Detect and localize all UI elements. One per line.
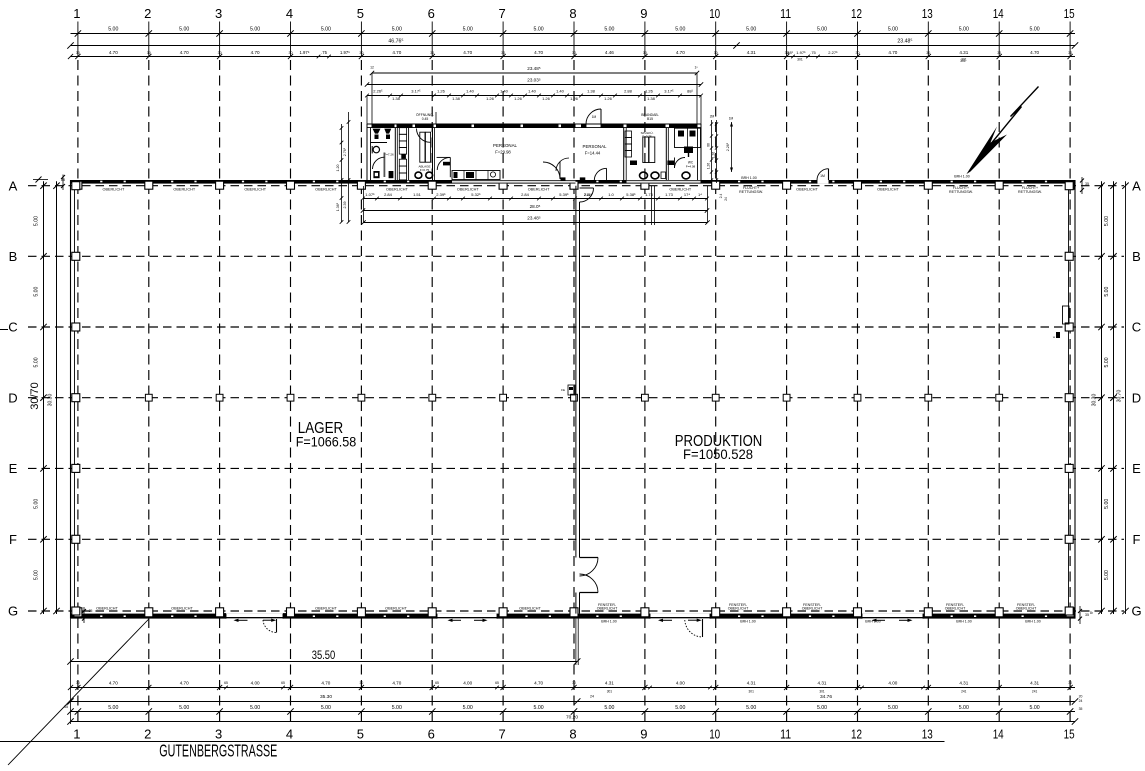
svg-text:OBERLICHT: OBERLICHT xyxy=(877,187,899,191)
svg-text:5.00: 5.00 xyxy=(179,27,189,33)
svg-text:4.31: 4.31 xyxy=(605,681,614,686)
svg-text:24: 24 xyxy=(590,695,594,699)
svg-text:1.38: 1.38 xyxy=(587,89,596,94)
svg-text:OBERLICHT: OBERLICHT xyxy=(244,187,266,191)
svg-text:1.26: 1.26 xyxy=(645,89,654,94)
svg-text:23.03⁵: 23.03⁵ xyxy=(527,78,540,83)
svg-text:3: 3 xyxy=(215,6,222,21)
svg-text:30: 30 xyxy=(430,51,434,55)
svg-text:5.00: 5.00 xyxy=(34,216,40,226)
svg-text:35: 35 xyxy=(1079,707,1083,711)
svg-text:5.00: 5.00 xyxy=(392,705,402,711)
svg-text:70.20: 70.20 xyxy=(566,715,578,721)
svg-text:3: 3 xyxy=(215,726,222,741)
svg-text:1⁴: 1⁴ xyxy=(698,192,702,197)
svg-text:4.70: 4.70 xyxy=(321,681,330,686)
svg-text:FE: FE xyxy=(561,388,565,392)
svg-text:5.00: 5.00 xyxy=(34,286,40,296)
svg-text:4.00: 4.00 xyxy=(463,681,472,686)
svg-text:4.70: 4.70 xyxy=(534,50,543,55)
svg-text:30: 30 xyxy=(643,51,647,55)
svg-text:30: 30 xyxy=(76,681,80,685)
svg-text:4: 4 xyxy=(286,726,293,741)
svg-text:5.00: 5.00 xyxy=(108,705,118,711)
svg-text:30: 30 xyxy=(997,51,1001,55)
svg-text:E: E xyxy=(1132,461,1141,476)
svg-text:1.26: 1.26 xyxy=(437,89,446,94)
svg-text:23.48⁵: 23.48⁵ xyxy=(527,216,540,221)
svg-text:F: F xyxy=(9,532,17,547)
svg-text:1M: 1M xyxy=(729,117,734,121)
svg-text:30: 30 xyxy=(359,51,363,55)
svg-text:1.40: 1.40 xyxy=(528,89,537,94)
svg-text:OBERLICHT: OBERLICHT xyxy=(96,606,118,610)
svg-text:4.70: 4.70 xyxy=(180,681,189,686)
svg-text:2.84: 2.84 xyxy=(584,192,593,197)
svg-text:301: 301 xyxy=(797,58,803,62)
svg-text:1.26: 1.26 xyxy=(707,163,711,169)
svg-text:28.0⁵: 28.0⁵ xyxy=(530,204,541,209)
svg-text:D: D xyxy=(8,390,17,405)
svg-text:2M: 2M xyxy=(710,115,715,119)
svg-text:30: 30 xyxy=(1068,51,1072,55)
svg-text:4.31: 4.31 xyxy=(959,50,968,55)
svg-text:8: 8 xyxy=(569,6,576,21)
svg-text:OBERLICHT: OBERLICHT xyxy=(103,187,125,191)
svg-text:OBERLICHT: OBERLICHT xyxy=(1016,606,1037,610)
svg-text:1.38: 1.38 xyxy=(452,96,461,101)
svg-text:1.51: 1.51 xyxy=(413,192,422,197)
svg-text:F=29.98: F=29.98 xyxy=(495,150,511,155)
svg-text:30: 30 xyxy=(76,51,80,55)
svg-text:OBERLICHT: OBERLICHT xyxy=(796,187,818,191)
svg-text:23.48⁵: 23.48⁵ xyxy=(527,66,540,71)
svg-text:OBERLICHT: OBERLICHT xyxy=(171,606,193,610)
svg-text:24: 24 xyxy=(1079,699,1083,703)
svg-text:35.50: 35.50 xyxy=(312,648,336,662)
svg-text:1.40: 1.40 xyxy=(556,89,565,94)
svg-text:88¹: 88¹ xyxy=(687,89,693,94)
svg-text:7: 7 xyxy=(498,726,505,741)
svg-text:15: 15 xyxy=(1064,726,1075,741)
svg-text:2.27⁵: 2.27⁵ xyxy=(828,50,838,55)
svg-text:4.70: 4.70 xyxy=(392,50,401,55)
svg-text:PERSONAL: PERSONAL xyxy=(493,143,517,148)
svg-text:5.00: 5.00 xyxy=(1104,357,1110,367)
svg-text:.75: .75 xyxy=(321,50,327,55)
svg-text:30: 30 xyxy=(714,51,718,55)
svg-text:D: D xyxy=(1132,390,1141,405)
svg-text:0.45: 0.45 xyxy=(422,117,429,121)
svg-text:5.00: 5.00 xyxy=(250,705,260,711)
svg-text:3.17⁵: 3.17⁵ xyxy=(664,89,674,94)
svg-text:4.00: 4.00 xyxy=(676,681,685,686)
svg-text:RETTUNGSW.: RETTUNGSW. xyxy=(949,190,973,194)
svg-text:1.97⁵: 1.97⁵ xyxy=(340,50,350,55)
svg-text:1.07⁵: 1.07⁵ xyxy=(365,192,375,197)
svg-text:OBERLICHT: OBERLICHT xyxy=(315,606,337,610)
svg-text:30: 30 xyxy=(501,51,505,55)
svg-text:88: 88 xyxy=(707,143,711,147)
svg-text:B15: B15 xyxy=(647,117,653,121)
svg-text:65: 65 xyxy=(224,681,228,685)
svg-text:65: 65 xyxy=(435,681,439,685)
svg-text:PERSONAL: PERSONAL xyxy=(583,144,607,149)
svg-text:1M: 1M xyxy=(820,174,825,178)
svg-text:301: 301 xyxy=(607,690,613,694)
svg-text:OBERLICHT: OBERLICHT xyxy=(457,187,479,191)
svg-text:1.73: 1.73 xyxy=(665,192,674,197)
svg-text:BRH 1.00: BRH 1.00 xyxy=(740,620,756,624)
svg-text:5: 5 xyxy=(357,726,364,741)
svg-text:2.84: 2.84 xyxy=(521,192,530,197)
svg-text:10: 10 xyxy=(709,726,720,741)
svg-text:34.76: 34.76 xyxy=(820,694,832,700)
svg-text:1.36⁵: 1.36⁵ xyxy=(336,202,340,211)
svg-text:5.00: 5.00 xyxy=(108,27,118,33)
svg-text:23.48⁵: 23.48⁵ xyxy=(897,39,912,45)
svg-text:301: 301 xyxy=(749,690,755,694)
svg-text:5.00: 5.00 xyxy=(675,27,685,33)
svg-text:35.30: 35.30 xyxy=(320,694,332,700)
svg-text:4.70: 4.70 xyxy=(463,50,472,55)
svg-text:5.00: 5.00 xyxy=(1104,216,1110,226)
svg-text:OBERLICHT: OBERLICHT xyxy=(728,606,749,610)
svg-text:301: 301 xyxy=(819,690,825,694)
svg-text:12: 12 xyxy=(370,66,374,70)
svg-text:5.00: 5.00 xyxy=(817,705,827,711)
svg-text:RETTUNGSW.: RETTUNGSW. xyxy=(1018,190,1042,194)
svg-text:30: 30 xyxy=(1068,681,1072,685)
svg-text:5.32⁵: 5.32⁵ xyxy=(471,192,481,197)
svg-text:OBERLICHT: OBERLICHT xyxy=(669,187,691,191)
svg-text:5.00: 5.00 xyxy=(1030,27,1040,33)
svg-text:OBERLICHT: OBERLICHT xyxy=(173,187,195,191)
svg-text:30: 30 xyxy=(926,51,930,55)
svg-text:7: 7 xyxy=(498,6,505,21)
svg-text:4.31: 4.31 xyxy=(818,681,827,686)
svg-text:F: F xyxy=(1133,532,1141,547)
svg-text:5.00: 5.00 xyxy=(1104,286,1110,296)
svg-text:BRH 1.00: BRH 1.00 xyxy=(954,175,970,179)
svg-text:.75: .75 xyxy=(810,50,816,55)
svg-text:12: 12 xyxy=(851,726,862,741)
svg-text:B: B xyxy=(1132,249,1141,264)
svg-text:C: C xyxy=(1132,320,1141,335)
svg-text:OBERLICHT: OBERLICHT xyxy=(386,187,408,191)
svg-text:OBERLICHT: OBERLICHT xyxy=(385,606,407,610)
svg-text:1.26: 1.26 xyxy=(486,96,495,101)
svg-text:1.0: 1.0 xyxy=(608,192,614,197)
svg-text:5.00: 5.00 xyxy=(179,705,189,711)
svg-text:15: 15 xyxy=(1064,6,1075,21)
svg-text:4.70: 4.70 xyxy=(109,681,118,686)
svg-text:5.00: 5.00 xyxy=(746,27,756,33)
svg-text:5.00: 5.00 xyxy=(463,27,473,33)
svg-text:30: 30 xyxy=(572,681,576,685)
svg-text:5.00: 5.00 xyxy=(1104,499,1110,509)
svg-text:2.26⁵: 2.26⁵ xyxy=(726,142,730,151)
svg-text:BRH 1.00: BRH 1.00 xyxy=(601,620,617,624)
svg-text:4.00: 4.00 xyxy=(888,681,897,686)
svg-text:C: C xyxy=(8,320,17,335)
svg-text:5.00: 5.00 xyxy=(34,499,40,509)
svg-text:4.70: 4.70 xyxy=(534,681,543,686)
svg-text:F=4.08: F=4.08 xyxy=(686,164,696,168)
svg-text:1.20: 1.20 xyxy=(336,165,340,172)
svg-text:1.26: 1.26 xyxy=(514,96,523,101)
svg-text:RETTUNGSW.: RETTUNGSW. xyxy=(739,190,763,194)
svg-text:30.70: 30.70 xyxy=(1117,390,1123,403)
svg-text:1: 1 xyxy=(73,726,80,741)
svg-text:3.17⁵: 3.17⁵ xyxy=(411,89,421,94)
svg-text:OBERLICHT: OBERLICHT xyxy=(945,606,966,610)
svg-text:BRH 1.00: BRH 1.00 xyxy=(956,620,972,624)
svg-text:OBERLICHT: OBERLICHT xyxy=(528,187,550,191)
svg-text:6: 6 xyxy=(428,6,435,21)
svg-text:4.31: 4.31 xyxy=(747,681,756,686)
svg-text:20: 20 xyxy=(1079,695,1083,699)
svg-text:4.70: 4.70 xyxy=(1030,50,1039,55)
svg-text:A: A xyxy=(9,178,18,193)
svg-text:2.26⁵: 2.26⁵ xyxy=(373,89,383,94)
svg-text:9: 9 xyxy=(640,726,647,741)
svg-text:F=1066.58: F=1066.58 xyxy=(296,435,357,450)
svg-text:5.00: 5.00 xyxy=(34,570,40,580)
svg-text:24: 24 xyxy=(724,197,728,201)
svg-text:5: 5 xyxy=(357,6,364,21)
svg-text:BRH 1.00: BRH 1.00 xyxy=(865,620,881,624)
svg-text:5.00: 5.00 xyxy=(1030,705,1040,711)
svg-text:5.39⁵: 5.39⁵ xyxy=(559,192,569,197)
svg-text:35: 35 xyxy=(89,609,93,613)
svg-text:1.97⁵: 1.97⁵ xyxy=(300,50,310,55)
svg-text:E: E xyxy=(9,461,18,476)
svg-text:1.26: 1.26 xyxy=(570,96,579,101)
svg-text:G: G xyxy=(8,604,18,619)
svg-text:14: 14 xyxy=(993,6,1004,21)
svg-text:5.00: 5.00 xyxy=(534,705,544,711)
svg-text:2.39⁵: 2.39⁵ xyxy=(436,192,446,197)
svg-text:1.26: 1.26 xyxy=(712,152,716,158)
svg-text:1.26: 1.26 xyxy=(542,96,551,101)
svg-text:5.38⁵: 5.38⁵ xyxy=(626,192,636,197)
svg-text:F=14.44: F=14.44 xyxy=(585,151,601,156)
svg-text:5.00: 5.00 xyxy=(534,27,544,33)
svg-text:5.00: 5.00 xyxy=(1104,570,1110,580)
svg-text:30: 30 xyxy=(856,51,860,55)
svg-text:F=1050.528: F=1050.528 xyxy=(683,447,753,462)
svg-text:OBERLICHT: OBERLICHT xyxy=(802,606,823,610)
svg-text:1.38: 1.38 xyxy=(392,96,401,101)
svg-text:13: 13 xyxy=(922,726,933,741)
svg-text:30: 30 xyxy=(572,51,576,55)
svg-text:5.00: 5.00 xyxy=(321,705,331,711)
svg-text:65: 65 xyxy=(495,681,499,685)
svg-text:5.00: 5.00 xyxy=(959,705,969,711)
svg-text:1.40: 1.40 xyxy=(466,89,475,94)
svg-text:10: 10 xyxy=(709,6,720,21)
svg-text:48¹: 48¹ xyxy=(787,50,793,55)
svg-text:4.46: 4.46 xyxy=(605,50,614,55)
svg-text:5.00: 5.00 xyxy=(463,705,473,711)
svg-text:46.76⁵: 46.76⁵ xyxy=(388,39,403,45)
svg-text:8: 8 xyxy=(569,726,576,741)
svg-text:G: G xyxy=(1131,604,1141,619)
svg-text:OBERLICHT: OBERLICHT xyxy=(315,187,337,191)
svg-text:2.4: 2.4 xyxy=(719,194,723,199)
svg-text:11: 11 xyxy=(780,6,791,21)
svg-text:30: 30 xyxy=(147,51,151,55)
svg-text:BRH 1.00: BRH 1.00 xyxy=(741,176,757,180)
svg-text:4.70: 4.70 xyxy=(251,50,260,55)
svg-text:4: 4 xyxy=(286,6,293,21)
svg-text:5.00: 5.00 xyxy=(604,27,614,33)
svg-text:30: 30 xyxy=(360,681,364,685)
svg-text:OBERLICHT: OBERLICHT xyxy=(519,606,541,610)
svg-text:B: B xyxy=(9,249,18,264)
svg-text:5.00: 5.00 xyxy=(321,27,331,33)
svg-text:35: 35 xyxy=(1085,182,1089,186)
svg-text:5.00: 5.00 xyxy=(392,27,402,33)
svg-text:4.70: 4.70 xyxy=(676,50,685,55)
svg-text:5.00: 5.00 xyxy=(250,27,260,33)
svg-text:1.73: 1.73 xyxy=(645,192,654,197)
svg-text:5.00: 5.00 xyxy=(675,705,685,711)
svg-text:35: 35 xyxy=(1085,613,1089,617)
svg-text:1.26: 1.26 xyxy=(604,96,613,101)
svg-text:2.84: 2.84 xyxy=(384,192,393,197)
svg-text:4.70: 4.70 xyxy=(392,681,401,686)
svg-text:35: 35 xyxy=(64,705,68,709)
svg-text:2.76⁵: 2.76⁵ xyxy=(343,147,347,156)
svg-text:1.97⁵: 1.97⁵ xyxy=(796,50,806,55)
svg-text:12: 12 xyxy=(851,6,862,21)
svg-text:30.30: 30.30 xyxy=(1092,394,1098,407)
svg-text:2.88: 2.88 xyxy=(624,89,633,94)
svg-text:4.70: 4.70 xyxy=(109,50,118,55)
svg-text:301: 301 xyxy=(960,59,966,63)
svg-text:4.70: 4.70 xyxy=(180,50,189,55)
svg-text:17⁴: 17⁴ xyxy=(684,192,690,197)
svg-text:5.00: 5.00 xyxy=(888,27,898,33)
svg-text:1.40: 1.40 xyxy=(500,89,509,94)
svg-text:30.30: 30.30 xyxy=(48,394,54,407)
svg-text:65: 65 xyxy=(281,681,285,685)
svg-text:A: A xyxy=(1132,178,1141,193)
svg-text:5.00: 5.00 xyxy=(888,705,898,711)
svg-text:30: 30 xyxy=(218,51,222,55)
svg-text:5.00: 5.00 xyxy=(746,705,756,711)
svg-text:30: 30 xyxy=(289,51,293,55)
svg-text:4.31: 4.31 xyxy=(1030,681,1039,686)
svg-text:11: 11 xyxy=(780,726,791,741)
svg-text:1.38: 1.38 xyxy=(647,96,656,101)
svg-text:9: 9 xyxy=(640,6,647,21)
svg-text:1M: 1M xyxy=(592,115,597,119)
svg-text:4.31: 4.31 xyxy=(747,50,756,55)
svg-text:30/70: 30/70 xyxy=(29,382,41,410)
svg-text:14: 14 xyxy=(993,726,1004,741)
svg-text:BRH 1.00: BRH 1.00 xyxy=(1025,620,1041,624)
svg-text:6: 6 xyxy=(428,726,435,741)
svg-text:4.00: 4.00 xyxy=(251,681,260,686)
svg-text:F=7.26: F=7.26 xyxy=(384,153,394,157)
svg-text:13: 13 xyxy=(922,6,933,21)
svg-text:OBERLICHT: OBERLICHT xyxy=(597,606,618,610)
svg-text:5.00: 5.00 xyxy=(34,357,40,367)
svg-text:GUTENBERGSTRASSE: GUTENBERGSTRASSE xyxy=(159,741,277,761)
svg-text:5.00: 5.00 xyxy=(604,705,614,711)
svg-text:2.39: 2.39 xyxy=(343,202,347,209)
svg-text:5.00: 5.00 xyxy=(959,27,969,33)
svg-text:2: 2 xyxy=(144,726,151,741)
svg-text:241: 241 xyxy=(1032,690,1038,694)
svg-text:4.31: 4.31 xyxy=(959,681,968,686)
svg-text:4.70: 4.70 xyxy=(888,50,897,55)
svg-text:5.00: 5.00 xyxy=(817,27,827,33)
svg-text:1: 1 xyxy=(73,6,80,21)
svg-text:241: 241 xyxy=(961,690,967,694)
svg-text:2: 2 xyxy=(144,6,151,21)
